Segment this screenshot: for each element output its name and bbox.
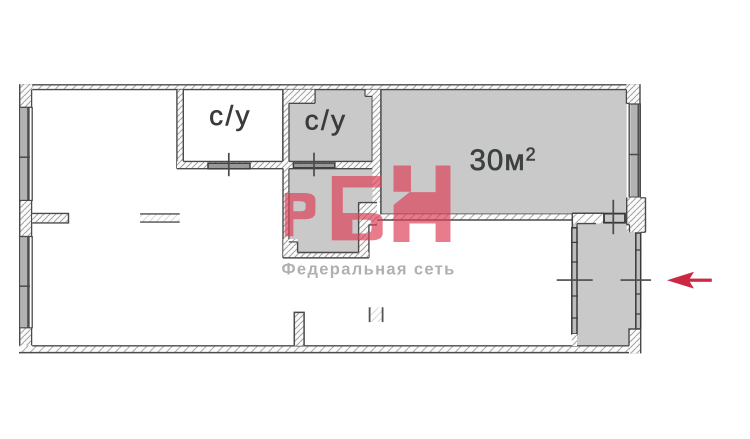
svg-text:Федеральная сеть: Федеральная сеть: [282, 261, 456, 279]
svg-text:с/у: с/у: [209, 100, 252, 131]
svg-text:с/у: с/у: [305, 105, 348, 136]
